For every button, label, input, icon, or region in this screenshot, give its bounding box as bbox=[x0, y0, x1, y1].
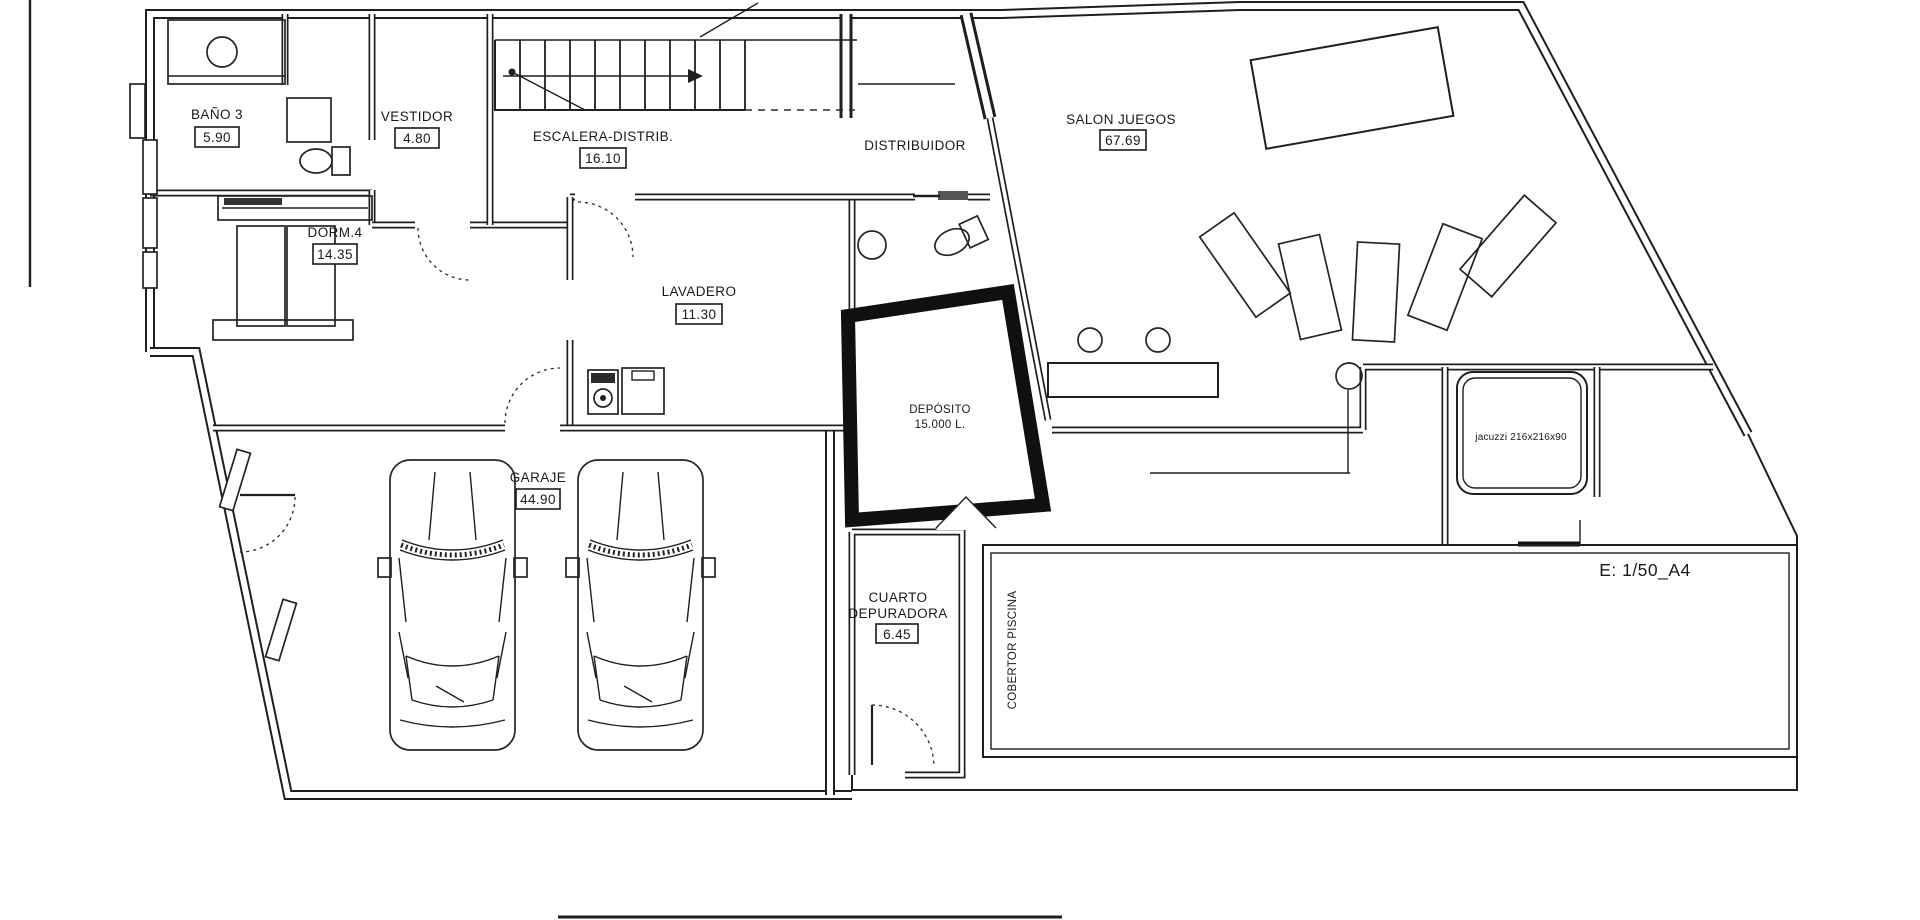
game-table bbox=[1251, 27, 1454, 149]
toilet-icon bbox=[300, 147, 350, 175]
gameroom-furniture bbox=[1048, 27, 1556, 397]
car-1 bbox=[378, 460, 527, 750]
label-cobertor-piscina: COBERTOR PISCINA bbox=[1007, 591, 1019, 710]
round-table bbox=[1336, 363, 1362, 389]
room-area-depuradora: 6.45 bbox=[883, 627, 911, 642]
lounger-3 bbox=[1352, 242, 1399, 342]
car-2 bbox=[566, 460, 715, 750]
bedroom4-furniture bbox=[213, 226, 353, 340]
wc-fixtures bbox=[858, 191, 988, 261]
bar-counter bbox=[1048, 363, 1218, 397]
room-area-lavadero: 11.30 bbox=[682, 307, 717, 322]
room-area-dorm4: 14.35 bbox=[317, 247, 353, 262]
toilet-icon bbox=[930, 216, 988, 262]
label-jacuzzi: jacuzzi 216x216x90 bbox=[1474, 432, 1567, 443]
label-deposito: DEPÓSITO bbox=[909, 403, 971, 416]
room-label-vestidor: VESTIDOR bbox=[381, 109, 453, 124]
stool-2 bbox=[1146, 328, 1170, 352]
room-label-depuradora-2: DEPURADORA bbox=[848, 606, 947, 621]
room-label-lavadero: LAVADERO bbox=[662, 284, 737, 299]
stool-1 bbox=[1078, 328, 1102, 352]
lounger-2 bbox=[1279, 235, 1342, 340]
laundry-fixtures bbox=[588, 368, 664, 414]
windows bbox=[130, 84, 296, 661]
shower-tray bbox=[287, 98, 331, 142]
room-area-salon: 67.69 bbox=[1105, 133, 1141, 148]
room-area-vestidor: 4.80 bbox=[403, 131, 431, 146]
bathroom3-fixtures bbox=[168, 20, 350, 175]
lounger-1 bbox=[1200, 213, 1291, 317]
room-area-bano3: 5.90 bbox=[203, 130, 231, 145]
stair-treads bbox=[495, 40, 745, 110]
room-label-salon: SALON JUEGOS bbox=[1066, 112, 1176, 127]
label-distribuidor: DISTRIBUIDOR bbox=[864, 138, 966, 153]
floor-plan-page: BAÑO 3 5.90 VESTIDOR 4.80 ESCALERA-DISTR… bbox=[0, 0, 1920, 920]
lounger-4 bbox=[1408, 224, 1482, 331]
room-label-bano3: BAÑO 3 bbox=[191, 107, 243, 122]
label-deposito-capacity: 15.000 L. bbox=[915, 419, 966, 431]
room-area-escalera: 16.10 bbox=[585, 151, 621, 166]
washer-icon bbox=[588, 370, 618, 414]
door-frame bbox=[938, 191, 968, 200]
room-label-escalera: ESCALERA-DISTRIB. bbox=[533, 129, 673, 144]
stairs bbox=[495, 3, 857, 110]
room-label-dorm4: DORM.4 bbox=[308, 225, 363, 240]
floor-plan-drawing: BAÑO 3 5.90 VESTIDOR 4.80 ESCALERA-DISTR… bbox=[0, 0, 1920, 920]
lounger-5 bbox=[1460, 195, 1556, 297]
wardrobe bbox=[218, 196, 372, 220]
sink-icon bbox=[207, 37, 237, 67]
sink-icon bbox=[858, 231, 886, 259]
room-label-garaje: GARAJE bbox=[510, 470, 566, 485]
room-area-garaje: 44.90 bbox=[520, 492, 556, 507]
label-scale: E: 1/50_A4 bbox=[1599, 560, 1691, 581]
room-label-depuradora-1: CUARTO bbox=[869, 590, 928, 605]
